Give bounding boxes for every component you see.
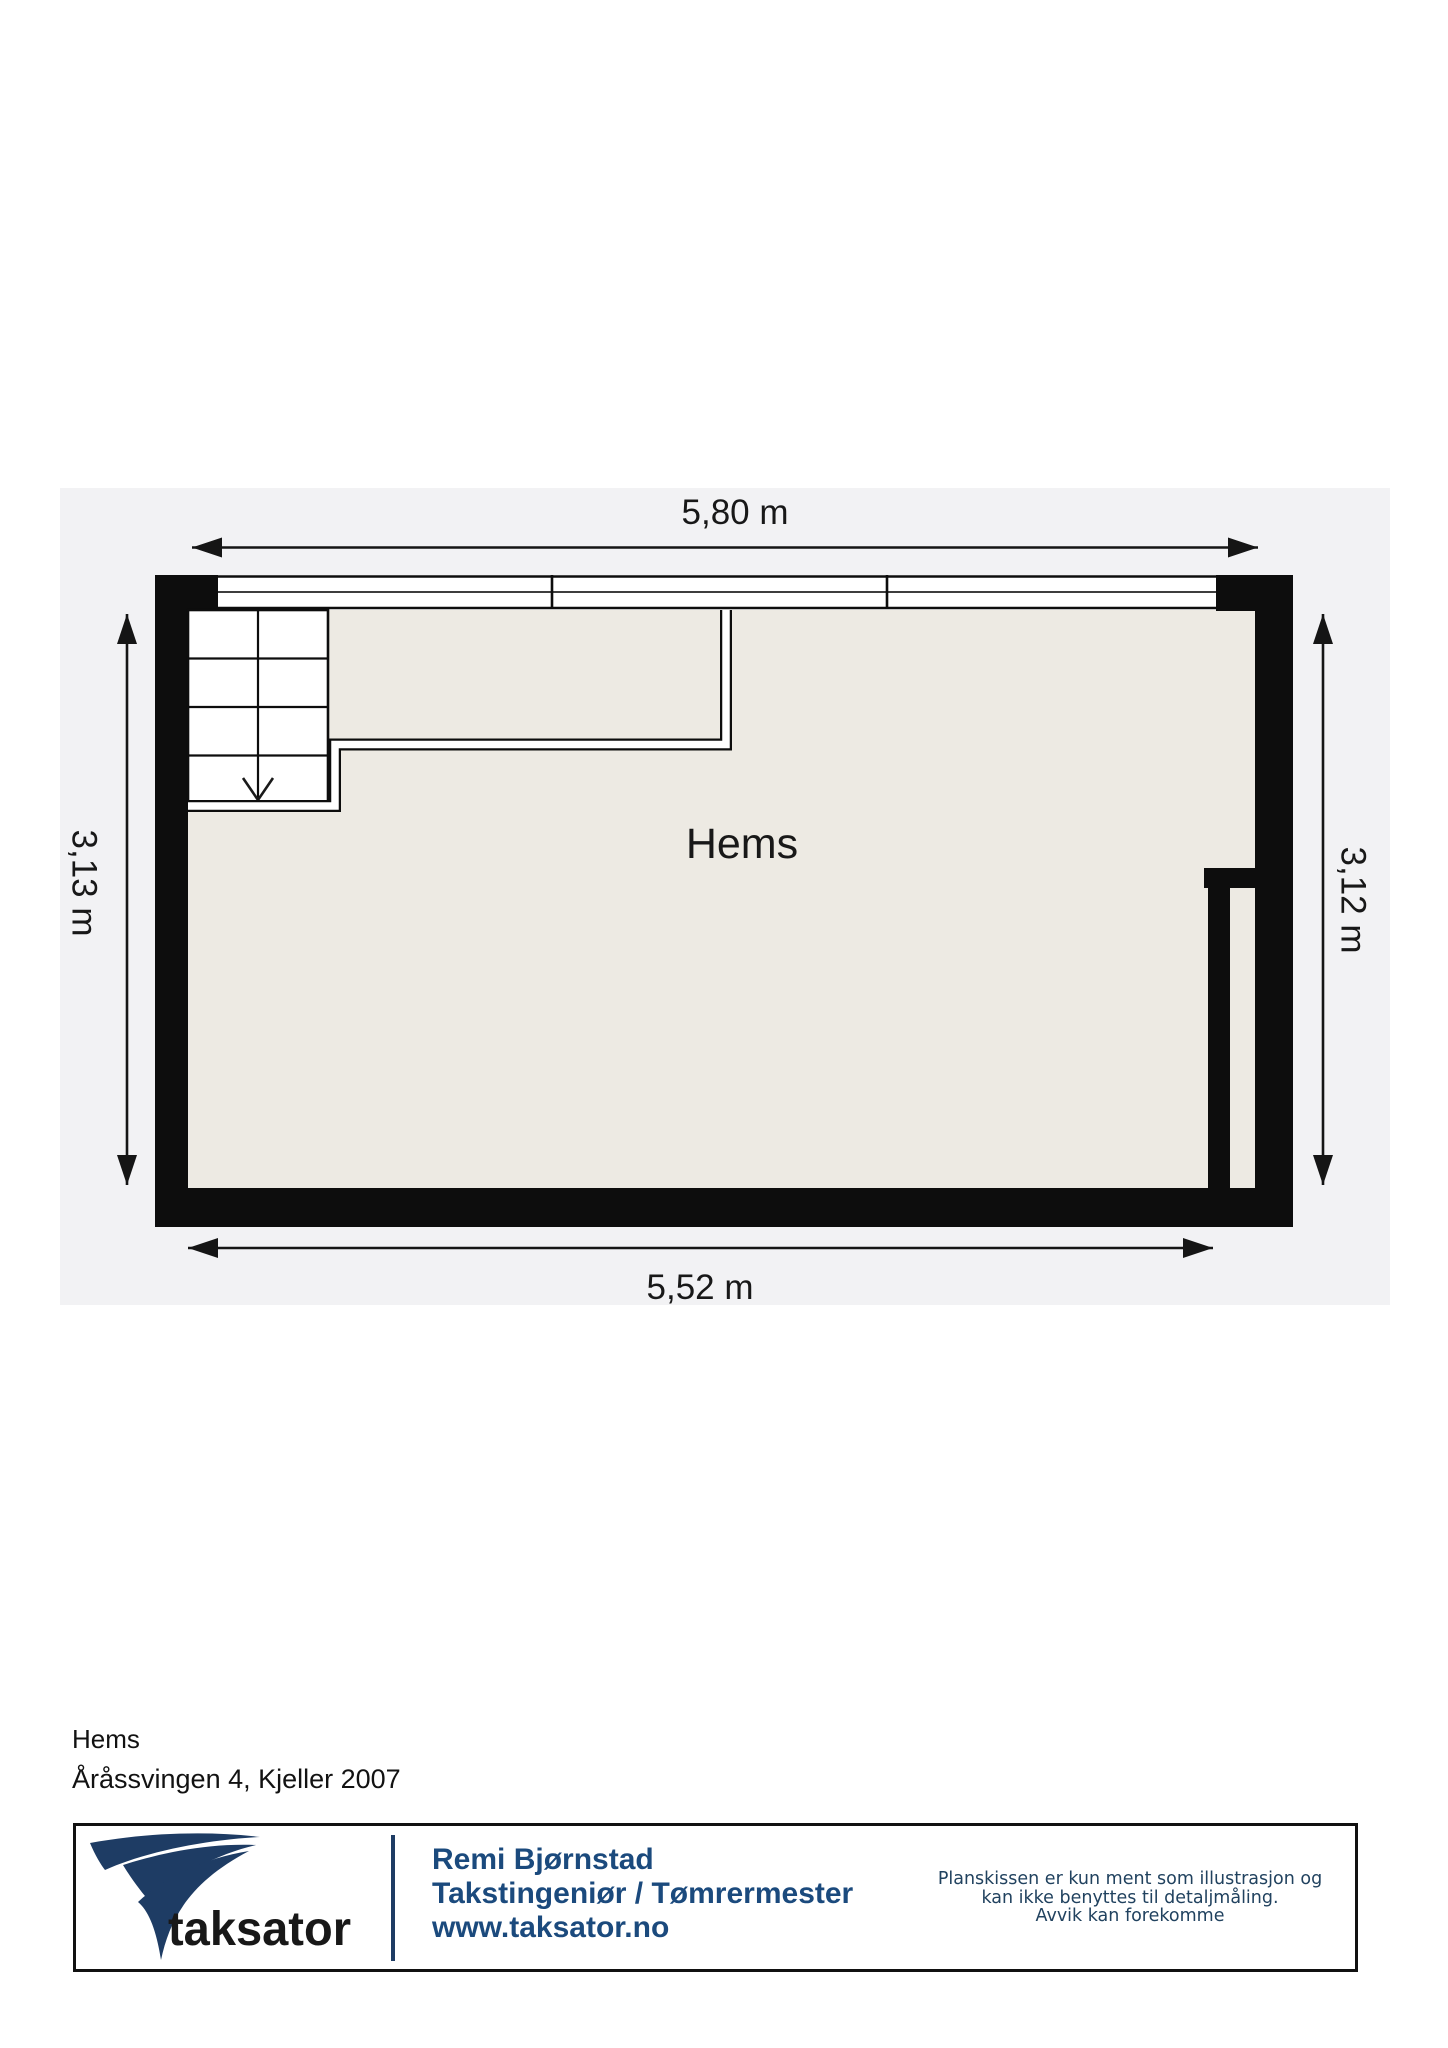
disclaimer-block: Planskissen er kun ment som illustrasjon…: [925, 1826, 1335, 1969]
wall-stub-right: [1204, 868, 1256, 888]
caption-floor-name: Hems: [72, 1724, 140, 1755]
wall-right: [1255, 575, 1293, 1227]
disclaimer-line: Avvik kan forekomme: [925, 1907, 1335, 1926]
wall-left: [155, 575, 188, 1227]
contact-block: Remi Bjørnstad Takstingeniør / Tømrermes…: [395, 1826, 853, 1969]
dimension-label-right: 3,12 m: [1334, 847, 1373, 954]
dimension-label-bottom: 5,52 m: [647, 1268, 754, 1307]
wall-inner-right: [1208, 888, 1230, 1192]
brand-wordmark: taksator: [168, 1903, 351, 1956]
footer-box: taksator Remi Bjørnstad Takstingeniør / …: [73, 1823, 1358, 1972]
contact-name: Remi Bjørnstad: [432, 1843, 853, 1877]
disclaimer-line: kan ikke benyttes til detaljmåling.: [925, 1889, 1335, 1908]
wall-bottom: [155, 1188, 1293, 1227]
wall-corner-top-left: [155, 575, 218, 610]
contact-website: www.taksator.no: [432, 1911, 853, 1945]
floor-plan: 5,80 m 5,52 m 3,13 m 3,12 m Hems: [0, 0, 1448, 1400]
room-label: Hems: [686, 820, 798, 868]
stairs: [188, 610, 328, 805]
page: 5,80 m 5,52 m 3,13 m 3,12 m Hems Hems År…: [0, 0, 1448, 2048]
top-wall-window: [218, 575, 1216, 610]
brand-logo: taksator: [76, 1826, 391, 1969]
caption-address: Åråssvingen 4, Kjeller 2007: [72, 1764, 401, 1795]
contact-role: Takstingeniør / Tømrermester: [432, 1877, 853, 1911]
taksator-swoosh-icon: taksator: [76, 1826, 391, 1969]
disclaimer-line: Planskissen er kun ment som illustrasjon…: [925, 1870, 1335, 1889]
dimension-label-left: 3,13 m: [65, 830, 104, 937]
dimension-label-top: 5,80 m: [682, 493, 789, 532]
wall-corner-top-right: [1216, 575, 1293, 611]
